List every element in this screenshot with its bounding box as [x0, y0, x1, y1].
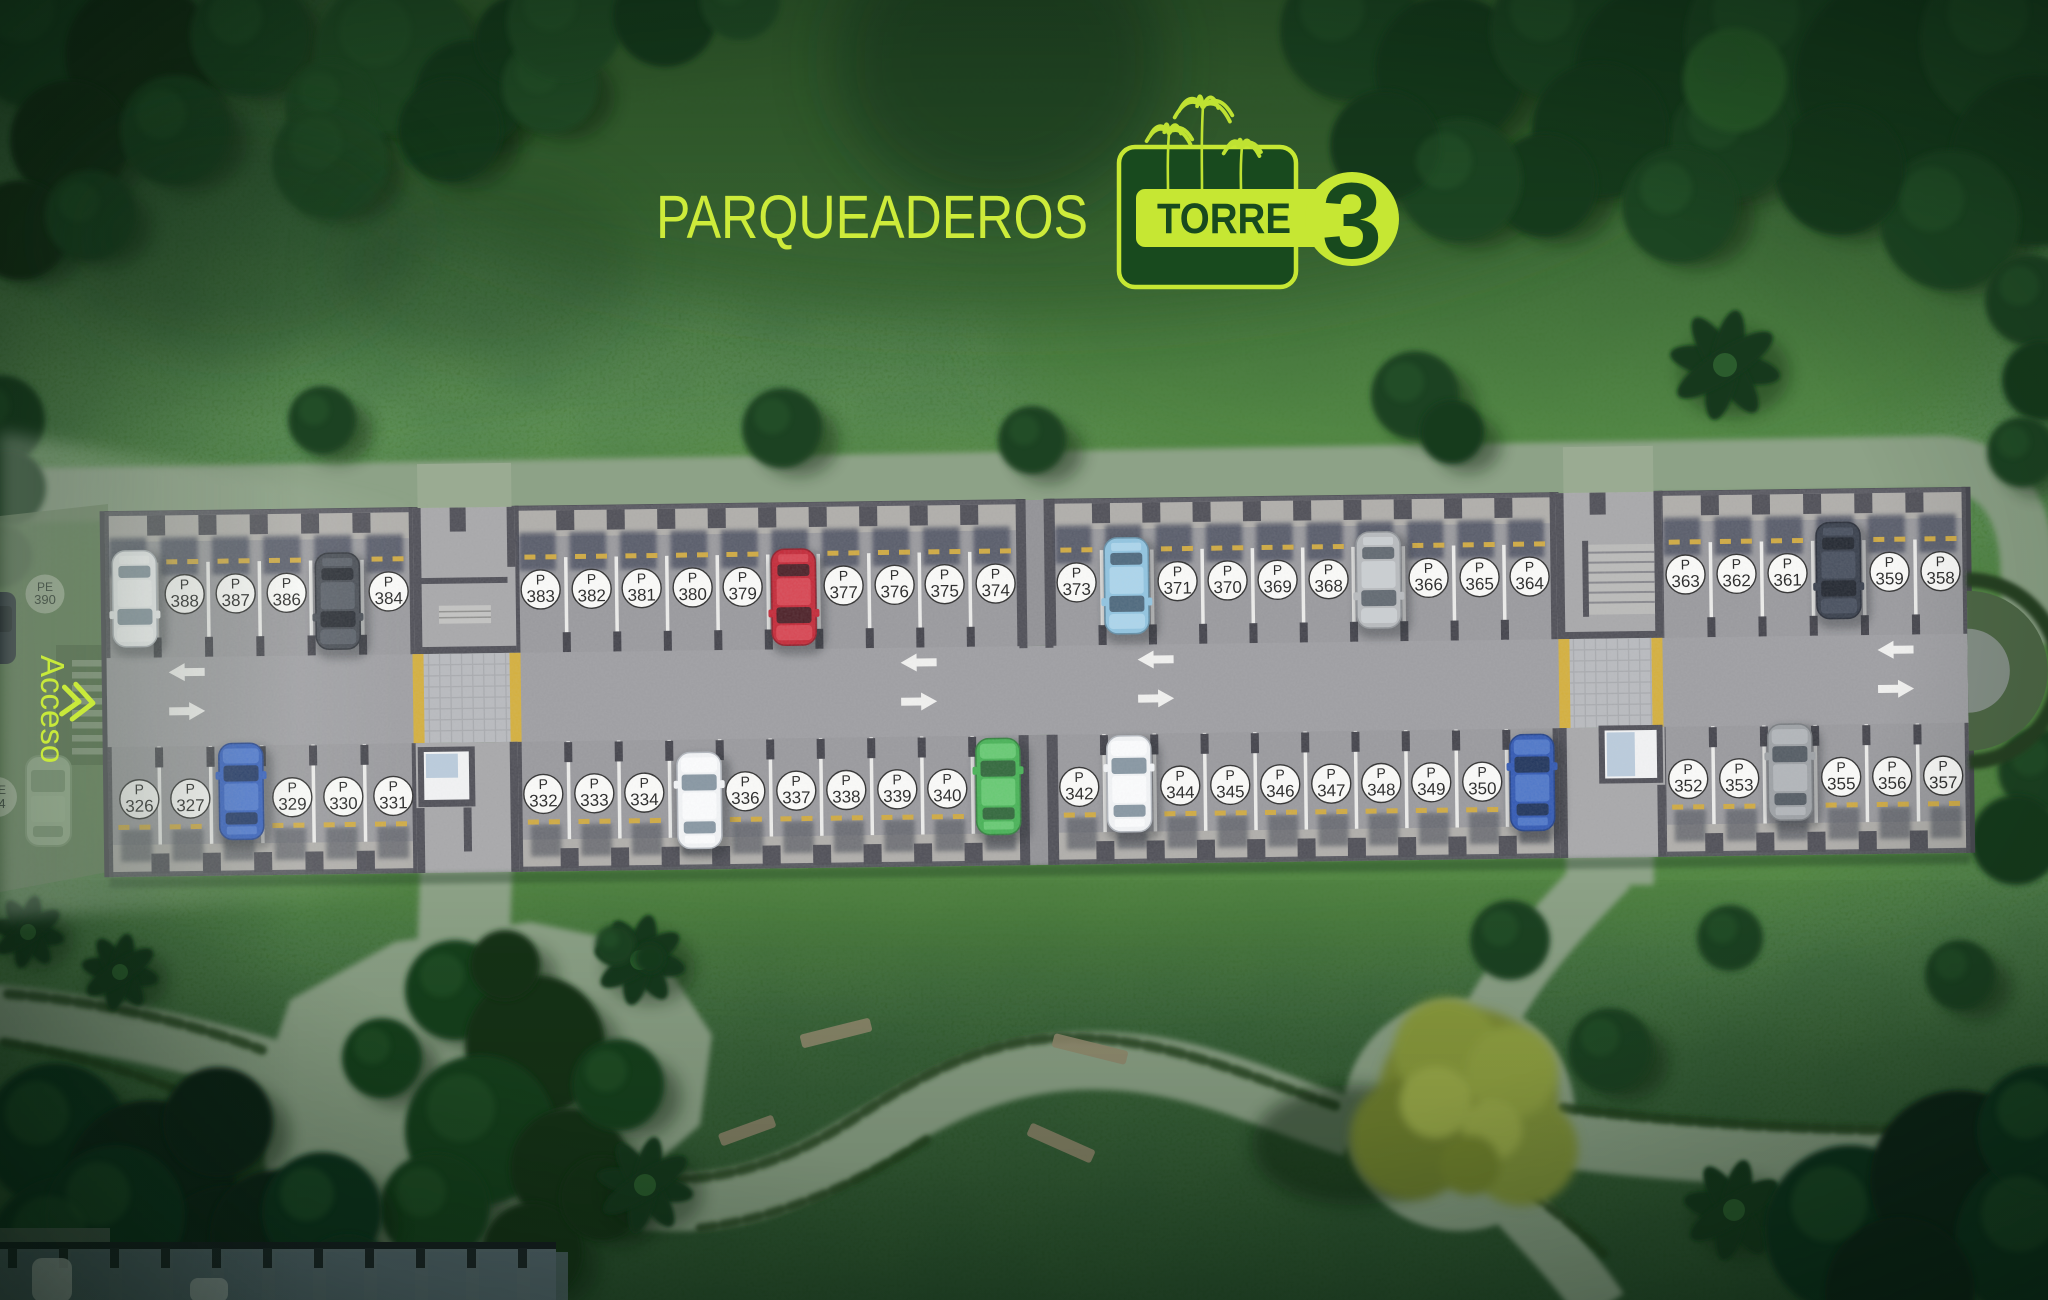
svg-text:TORRE: TORRE: [1157, 195, 1291, 243]
svg-text:PARQUEADEROS: PARQUEADEROS: [656, 183, 1088, 251]
svg-text:3: 3: [1322, 160, 1382, 281]
